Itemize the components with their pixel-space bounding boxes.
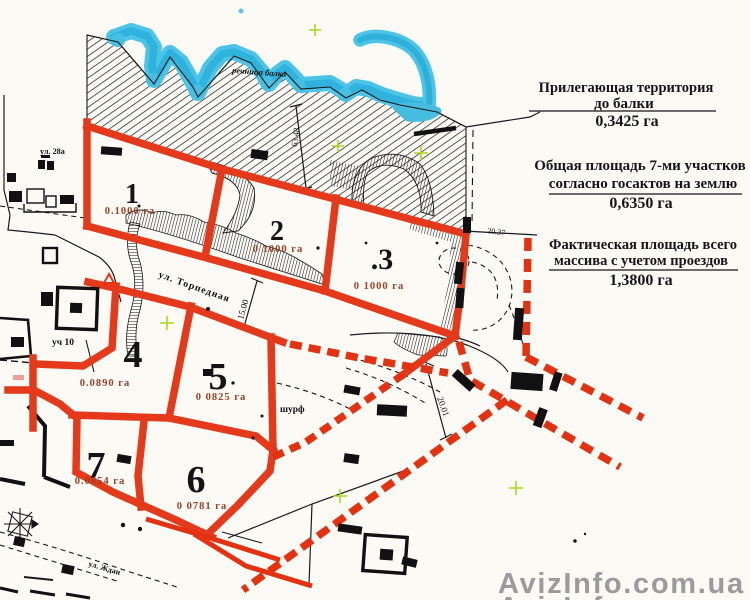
svg-text:0 1000 га: 0 1000 га — [354, 281, 405, 292]
svg-text:0.0854 га: 0.0854 га — [75, 476, 126, 487]
svg-text:0.1000 га: 0.1000 га — [105, 206, 156, 217]
svg-text:0 0781 га: 0 0781 га — [177, 501, 228, 512]
svg-text:массива с учетом проездов: массива с учетом проездов — [554, 253, 728, 269]
svg-text:до балки: до балки — [594, 96, 654, 112]
svg-text:0.0890 га: 0.0890 га — [80, 378, 131, 389]
svg-text:0,6350 га: 0,6350 га — [609, 195, 672, 212]
svg-text:ул. 28а: ул. 28а — [40, 147, 65, 156]
svg-text:0 1000 га: 0 1000 га — [253, 244, 304, 255]
svg-text:уч 10: уч 10 — [52, 338, 74, 348]
svg-text:1,3800 га: 1,3800 га — [609, 272, 672, 289]
svg-text:Фактическая площадь всего: Фактическая площадь всего — [549, 237, 737, 253]
svg-text:.3: .3 — [371, 243, 394, 276]
svg-text:согласно госактов на землю: согласно госактов на землю — [549, 176, 737, 192]
svg-text:6: 6 — [187, 459, 206, 501]
svg-text:0 0825 га: 0 0825 га — [196, 392, 247, 403]
svg-text:шурф: шурф — [280, 404, 305, 415]
svg-text:Прилегающая территория: Прилегающая территория — [539, 80, 714, 96]
svg-text:2: 2 — [270, 216, 284, 247]
svg-text:Общая площадь 7-ми участков: Общая площадь 7-ми участков — [534, 158, 745, 174]
svg-text:0,3425 га: 0,3425 га — [595, 113, 658, 130]
svg-text:AvizInfo.com.ua: AvizInfo.com.ua — [498, 592, 745, 600]
svg-text:4: 4 — [124, 334, 143, 376]
